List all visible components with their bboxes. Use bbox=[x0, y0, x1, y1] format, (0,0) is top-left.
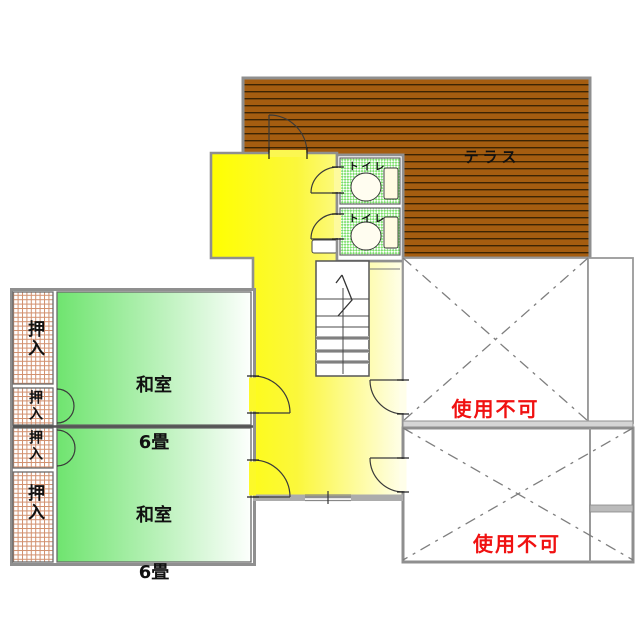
washbasin bbox=[312, 240, 337, 253]
closet-label-4: 押入 bbox=[22, 484, 47, 522]
unusable-label-top: 使用不可 bbox=[403, 393, 588, 422]
room-label-2: 和室 6畳 bbox=[57, 468, 251, 601]
floor-plan: テラス トイレ トイレ 和室 6畳 和室 6畳 押入 押入 押入 押入 使用不可… bbox=[0, 0, 640, 640]
room-label-1: 和室 6畳 bbox=[57, 338, 251, 471]
toilet-label-2: トイレ bbox=[339, 210, 397, 225]
unusable-label-bottom: 使用不可 bbox=[403, 528, 631, 557]
terrace-label: テラス bbox=[450, 146, 534, 167]
closet-label-2: 押入 bbox=[25, 390, 45, 422]
toilet-label-1: トイレ bbox=[339, 158, 397, 173]
room-name: 和室 bbox=[57, 506, 251, 525]
closet-label-1: 押入 bbox=[22, 320, 47, 358]
side-strip bbox=[588, 258, 633, 423]
room-name: 和室 bbox=[57, 376, 251, 395]
room-size: 6畳 bbox=[57, 433, 251, 452]
room-size: 6畳 bbox=[57, 563, 251, 582]
closet-label-3: 押入 bbox=[25, 430, 45, 462]
